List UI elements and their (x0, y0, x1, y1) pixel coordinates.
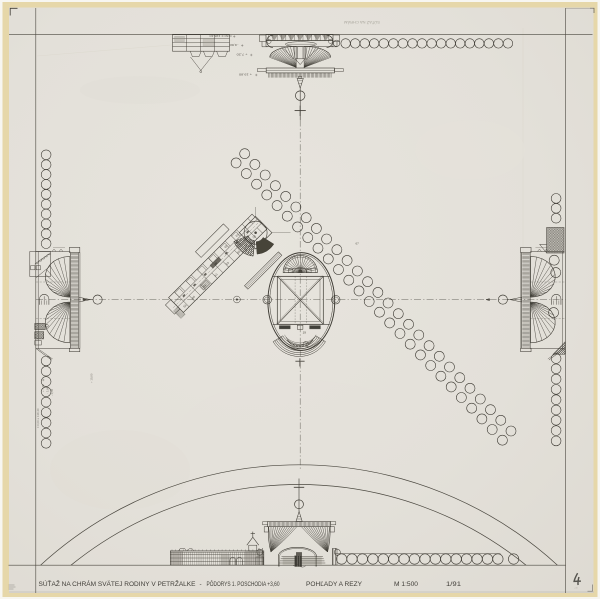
svg-text:19: 19 (303, 331, 307, 335)
svg-text:PÔDORYS 1. POSCHODIA +3,60: PÔDORYS 1. POSCHODIA +3,60 (207, 579, 280, 588)
svg-text:POHĽADY A REZY: POHĽADY A REZY (306, 581, 363, 588)
svg-text:-: - (200, 581, 202, 588)
svg-text:-3,60: -3,60 (229, 43, 238, 47)
svg-text:+ 7,20: + 7,20 (236, 53, 247, 57)
svg-text:1/91: 1/91 (446, 581, 462, 588)
svg-text:+ 19,80: + 19,80 (90, 373, 94, 383)
svg-text:67: 67 (356, 242, 360, 246)
svg-text:0,60 ≡ 136,40: 0,60 ≡ 136,40 (209, 34, 231, 38)
svg-text:SÚŤAŽ NA CHRÁM SVÄTEJ RODINY V: SÚŤAŽ NA CHRÁM SVÄTEJ RODINY V PETRŽALKE (39, 579, 196, 588)
svg-text:SÚŤAŽ NA CHRÁM: SÚŤAŽ NA CHRÁM (344, 20, 380, 25)
svg-text:+ 19,80: + 19,80 (239, 73, 252, 77)
svg-text:M 1:500: M 1:500 (394, 581, 419, 588)
svg-text:± 0,00 ≡ 138,40: ± 0,00 ≡ 138,40 (36, 408, 40, 428)
